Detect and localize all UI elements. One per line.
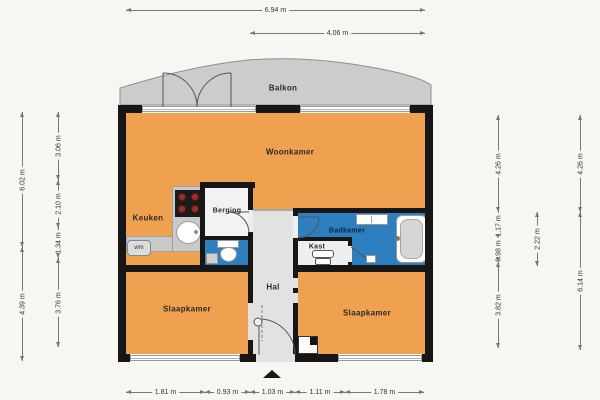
dim-left-inner-3: 1.34 m bbox=[58, 228, 59, 258]
dim-left-inner-2: 2.10 m bbox=[58, 180, 59, 228]
wall-segment bbox=[200, 182, 255, 188]
dim-right-inner-3: 0.98 m bbox=[498, 239, 499, 262]
small-basin-icon bbox=[206, 253, 218, 264]
dim-bottom-4: 1.11 m bbox=[295, 392, 345, 393]
floorplan-canvas: wm bbox=[0, 0, 600, 400]
dim-bottom-5: 1.78 m bbox=[345, 392, 424, 393]
washbasin-icon bbox=[356, 214, 388, 225]
wall-segment bbox=[118, 265, 253, 272]
wall-segment bbox=[200, 182, 205, 272]
closet-fixture-icon bbox=[312, 250, 334, 258]
dim-top-total: 6.94 m bbox=[126, 10, 425, 11]
window bbox=[338, 355, 422, 361]
badkamer-door-gap bbox=[293, 216, 298, 238]
room-label-balkon: Balkon bbox=[269, 84, 297, 93]
washing-machine-label: wm bbox=[134, 245, 143, 251]
stove-icon bbox=[175, 190, 203, 217]
wall-segment bbox=[410, 105, 433, 113]
dim-right-inner-4: 3.82 m bbox=[498, 262, 499, 348]
dim-right-inner-1: 4.26 m bbox=[498, 115, 499, 212]
meter-cupboard-door bbox=[310, 337, 317, 345]
wall-segment bbox=[293, 208, 425, 213]
dim-bottom-3: 1.03 m bbox=[250, 392, 295, 393]
wall-segment bbox=[118, 105, 126, 362]
room-label-kast: Kast bbox=[309, 244, 325, 251]
entrance-door-gap bbox=[256, 354, 295, 362]
washing-machine-icon: wm bbox=[127, 240, 151, 256]
closet-fixture-icon bbox=[315, 258, 331, 265]
room-label-keuken: Keuken bbox=[133, 214, 164, 223]
room-label-slaapkamer-left: Slaapkamer bbox=[163, 305, 211, 314]
wall-segment bbox=[296, 237, 352, 241]
wall-segment bbox=[240, 354, 256, 362]
berging-door-gap bbox=[248, 210, 253, 232]
room-label-hal: Hal bbox=[266, 283, 279, 292]
room-label-woonkamer: Woonkamer bbox=[266, 148, 314, 157]
dim-left-inner-4: 3.76 m bbox=[58, 258, 59, 347]
kast-door-gap bbox=[348, 246, 352, 262]
wall-segment bbox=[118, 354, 130, 362]
dim-right-middle: 2.22 m bbox=[537, 212, 538, 266]
open-passage-line bbox=[253, 209, 293, 211]
room-label-badkamer: Badkamer bbox=[329, 228, 365, 235]
bedroom-left-door-gap bbox=[248, 303, 253, 340]
dim-left-outer-1: 6.02 m bbox=[22, 112, 23, 247]
dim-top-partial: 4.06 m bbox=[250, 33, 425, 34]
door-jamb bbox=[293, 288, 298, 293]
wall-segment bbox=[205, 236, 248, 240]
wall-segment bbox=[256, 105, 300, 113]
dim-right-outer-1: 4.26 m bbox=[580, 115, 581, 212]
window bbox=[142, 106, 256, 112]
room-label-slaapkamer-right: Slaapkamer bbox=[343, 309, 391, 318]
window bbox=[300, 106, 410, 112]
sink-tap-icon bbox=[194, 230, 198, 234]
dim-left-inner-1: 3.06 m bbox=[58, 112, 59, 180]
dim-bottom-1: 1.81 m bbox=[126, 392, 205, 393]
wall-segment bbox=[293, 265, 425, 272]
wall-segment bbox=[295, 354, 338, 362]
dim-right-inner-2: 1.17 m bbox=[498, 212, 499, 239]
wall-segment bbox=[422, 354, 433, 362]
wall-segment bbox=[425, 105, 433, 362]
window bbox=[130, 355, 240, 361]
bathtub-inner bbox=[400, 219, 423, 259]
pedestal-icon bbox=[366, 255, 376, 263]
wall-segment bbox=[118, 105, 142, 113]
bath-tap-icon bbox=[395, 236, 400, 241]
dim-bottom-2: 0.93 m bbox=[205, 392, 250, 393]
washbasin-divider bbox=[371, 216, 372, 223]
dim-right-outer-2: 6.14 m bbox=[580, 212, 581, 350]
dim-left-outer-2: 4.39 m bbox=[22, 247, 23, 361]
entrance-arrow-icon bbox=[263, 370, 281, 378]
room-label-berging: Berging bbox=[213, 208, 242, 215]
